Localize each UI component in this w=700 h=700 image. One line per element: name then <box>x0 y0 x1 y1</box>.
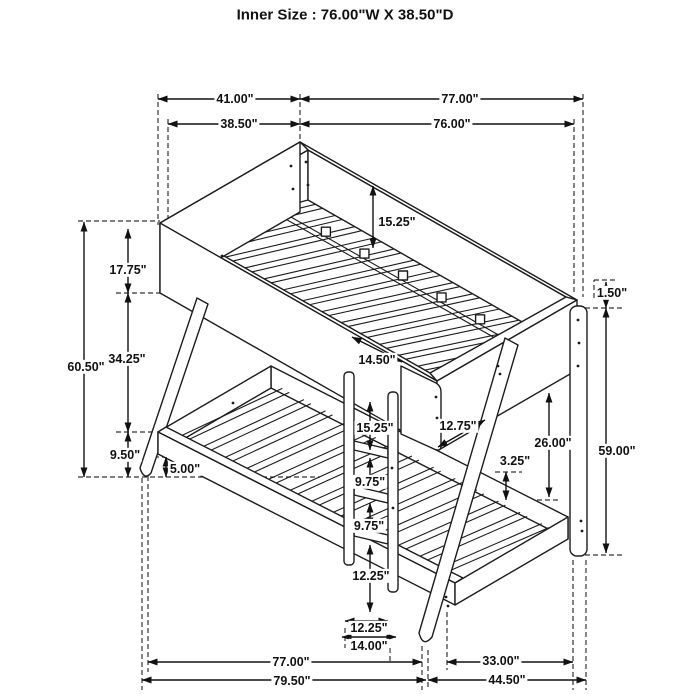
dim-label-floor-clearance: 5.00" <box>168 462 202 476</box>
dim-label-rung-to-floor: 12.25" <box>350 569 391 583</box>
dim-label-guard-gap-width: 14.50" <box>356 353 397 367</box>
dim-label-length-inner: 76.00" <box>431 117 472 131</box>
dim-label-rail-to-slat: 3.25" <box>498 454 532 468</box>
dim-label-leg-extension: 33.00" <box>480 654 521 668</box>
dim-label-overall-length-right: 44.50" <box>486 673 527 687</box>
diagram-line-art <box>0 0 700 700</box>
dim-label-upper-rail-height: 17.75" <box>107 263 148 277</box>
bunk-bed-dimension-diagram: Inner Size : 76.00"W X 38.50"D 41.00" 77… <box>0 0 700 700</box>
dim-label-ladder-outer-width: 14.00" <box>348 639 389 653</box>
dim-label-bunk-spacing: 34.25" <box>106 352 147 366</box>
dim-label-upper-guard-depth: 15.25" <box>376 215 417 229</box>
dim-label-under-bunk-clearance: 26.00" <box>532 436 573 450</box>
dim-label-ladder-step-top: 15.25" <box>354 421 395 435</box>
dim-label-post-height: 59.00" <box>596 444 637 458</box>
dim-label-length-outer: 77.00" <box>439 92 480 106</box>
dim-label-overall-height: 60.50" <box>65 360 106 374</box>
dim-label-depth-outer: 41.00" <box>214 92 255 106</box>
inner-size-title: Inner Size : 76.00"W X 38.50"D <box>237 7 454 24</box>
dim-label-depth-inner: 38.50" <box>218 117 259 131</box>
dim-label-rung-gap-1: 9.75" <box>353 475 387 489</box>
dim-label-guard-panel-width: 12.75" <box>437 419 478 433</box>
ladder-left-rail <box>344 372 354 565</box>
dim-label-post-cap: 1.50" <box>595 286 629 300</box>
dim-label-overall-length-left: 79.50" <box>271 674 312 688</box>
dim-label-lower-length: 77.00" <box>270 655 311 669</box>
dim-label-lower-frame-height: 9.50" <box>108 448 142 462</box>
dim-label-rung-gap-2: 9.75" <box>352 519 386 533</box>
dim-label-ladder-inner-width: 12.25" <box>348 621 389 635</box>
rear-right-post <box>570 306 587 556</box>
